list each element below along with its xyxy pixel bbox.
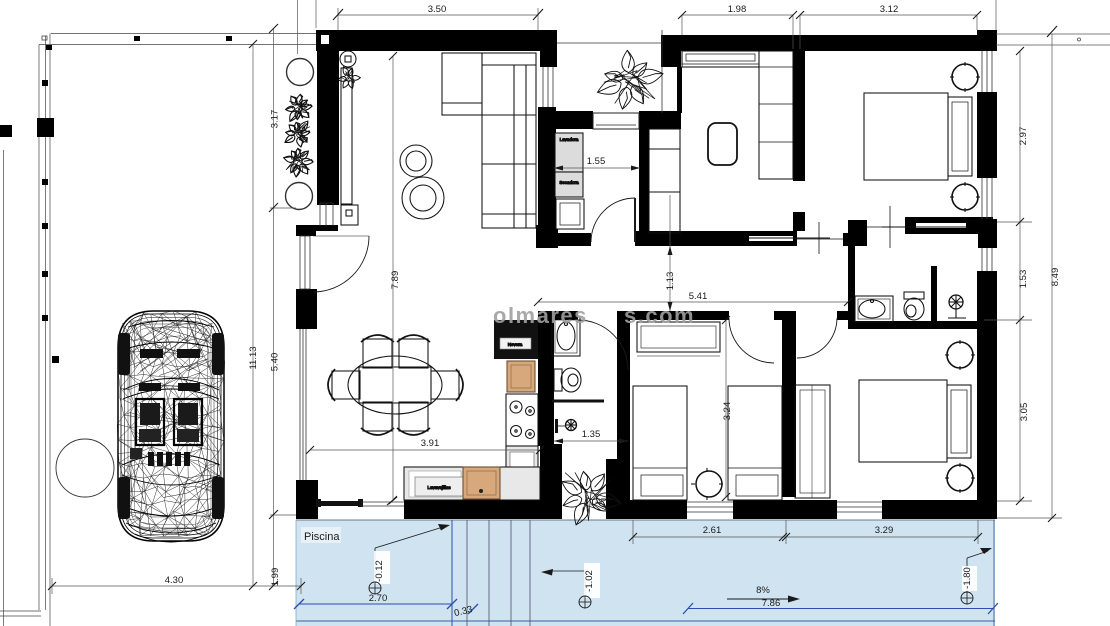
- svg-text:3.05: 3.05: [1019, 403, 1030, 422]
- svg-text:2.70: 2.70: [369, 593, 388, 604]
- svg-text:3.17: 3.17: [270, 110, 281, 129]
- svg-text:Lavadora: Lavadora: [560, 137, 579, 142]
- svg-text:2.61: 2.61: [703, 525, 722, 536]
- svg-text:3.12: 3.12: [880, 4, 899, 15]
- svg-text:5.40: 5.40: [270, 353, 281, 372]
- svg-text:-1.02: -1.02: [584, 570, 595, 592]
- svg-text:1.99: 1.99: [270, 568, 281, 587]
- svg-text:olmares: olmares: [493, 303, 588, 328]
- svg-text:11.13: 11.13: [248, 346, 259, 369]
- svg-text:Nevera: Nevera: [508, 342, 523, 347]
- svg-text:7.86: 7.86: [762, 598, 781, 609]
- svg-text:1.55: 1.55: [587, 156, 606, 167]
- svg-text:8%: 8%: [756, 585, 770, 596]
- svg-text:Piscina: Piscina: [304, 531, 340, 543]
- svg-text:Lavavajillas: Lavavajillas: [427, 485, 451, 490]
- svg-text:1.53: 1.53: [1018, 270, 1029, 289]
- svg-text:1.98: 1.98: [728, 4, 747, 15]
- svg-text:Secadora: Secadora: [559, 180, 579, 185]
- svg-text:5.41: 5.41: [689, 291, 708, 302]
- svg-text:3.50: 3.50: [428, 4, 447, 15]
- svg-text:3.29: 3.29: [875, 525, 894, 536]
- svg-text:1.13: 1.13: [665, 272, 676, 291]
- svg-text:-0.12: -0.12: [374, 560, 385, 582]
- svg-text:8.49: 8.49: [1050, 268, 1061, 287]
- svg-text:s.com: s.com: [624, 303, 695, 328]
- svg-text:7.89: 7.89: [390, 271, 401, 290]
- svg-text:2.97: 2.97: [1018, 127, 1029, 146]
- svg-text:3.24: 3.24: [722, 402, 733, 421]
- svg-text:3.91: 3.91: [421, 438, 440, 449]
- svg-text:-1.80: -1.80: [962, 567, 973, 589]
- svg-text:4.30: 4.30: [165, 575, 184, 586]
- svg-text:1.35: 1.35: [582, 429, 601, 440]
